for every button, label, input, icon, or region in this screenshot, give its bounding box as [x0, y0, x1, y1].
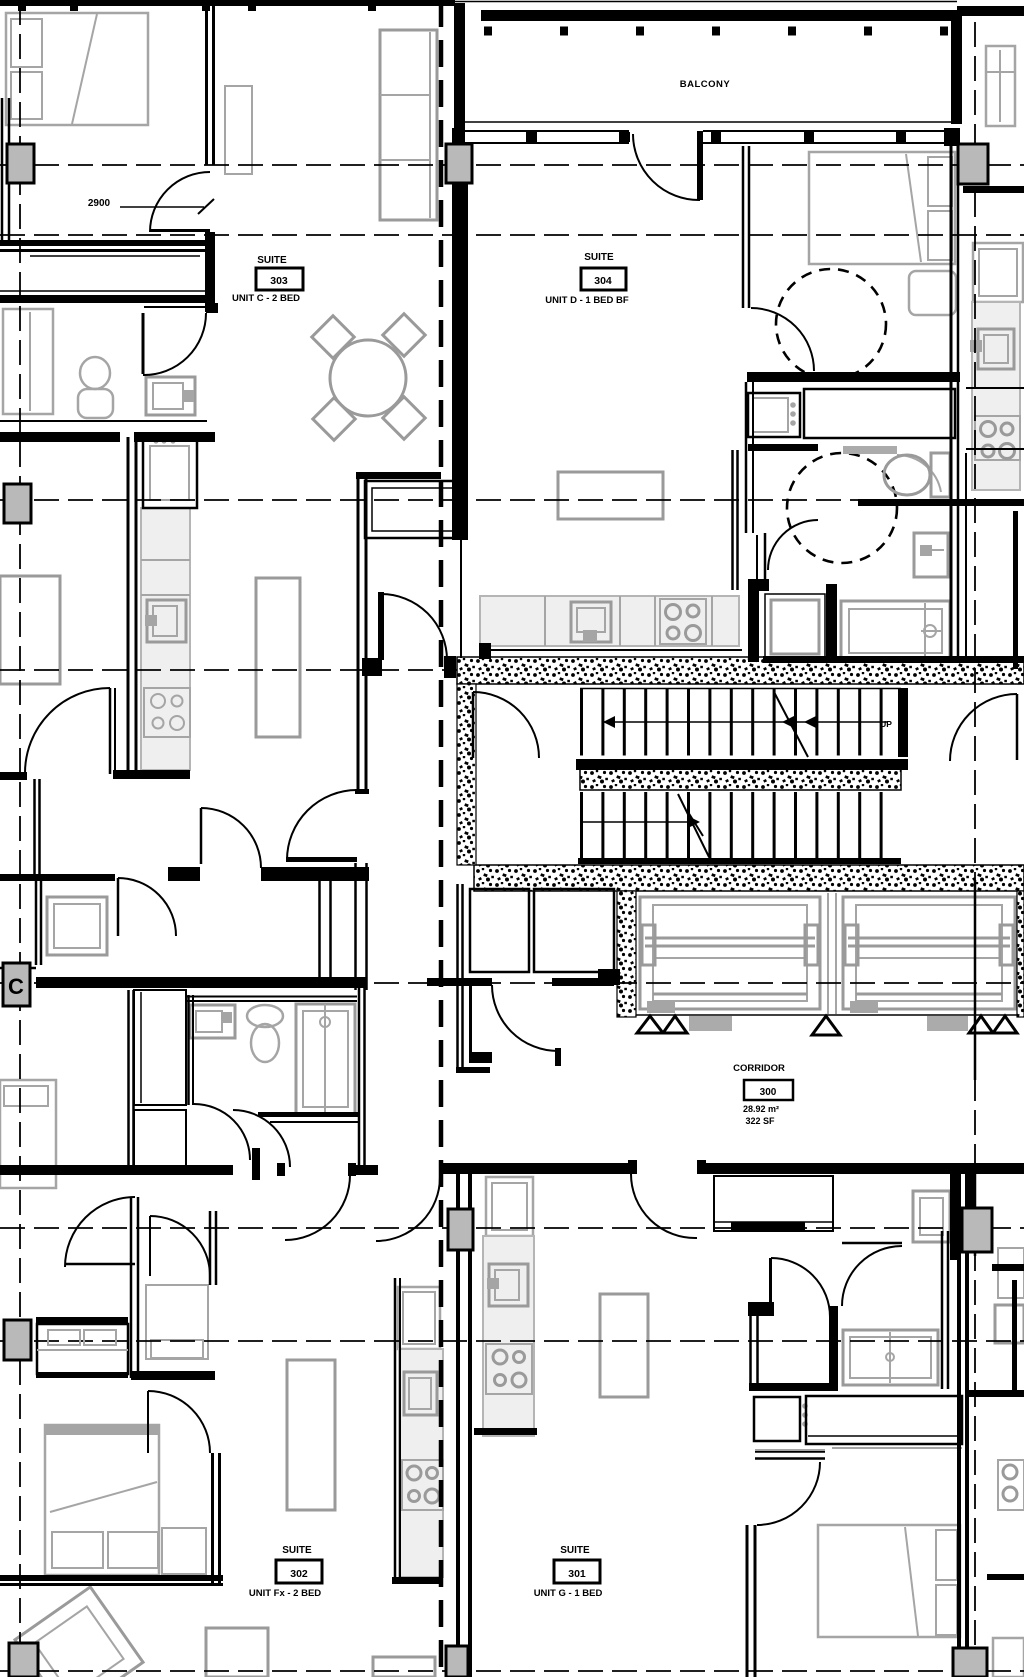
svg-text:SUITE: SUITE — [282, 1545, 312, 1556]
svg-text:SUITE: SUITE — [257, 255, 287, 266]
svg-text:UNIT C - 2 BED: UNIT C - 2 BED — [232, 293, 300, 304]
svg-text:UP: UP — [880, 719, 892, 729]
svg-text:322 SF: 322 SF — [745, 1116, 775, 1126]
svg-text:UNIT Fx - 2 BED: UNIT Fx - 2 BED — [249, 1588, 321, 1599]
svg-text:C: C — [8, 974, 24, 999]
svg-text:301: 301 — [568, 1568, 586, 1580]
svg-text:CORRIDOR: CORRIDOR — [733, 1063, 785, 1074]
svg-text:304: 304 — [594, 275, 612, 287]
svg-text:SUITE: SUITE — [560, 1545, 590, 1556]
svg-text:UNIT D - 1 BED BF: UNIT D - 1 BED BF — [545, 295, 629, 306]
svg-text:SUITE: SUITE — [584, 252, 614, 263]
svg-text:UNIT G - 1 BED: UNIT G - 1 BED — [534, 1588, 603, 1599]
svg-text:300: 300 — [760, 1087, 777, 1098]
svg-text:302: 302 — [290, 1568, 308, 1580]
svg-text:2900: 2900 — [88, 198, 111, 209]
svg-text:303: 303 — [270, 275, 288, 287]
svg-text:BALCONY: BALCONY — [680, 79, 731, 90]
svg-text:28.92 m²: 28.92 m² — [743, 1104, 779, 1114]
